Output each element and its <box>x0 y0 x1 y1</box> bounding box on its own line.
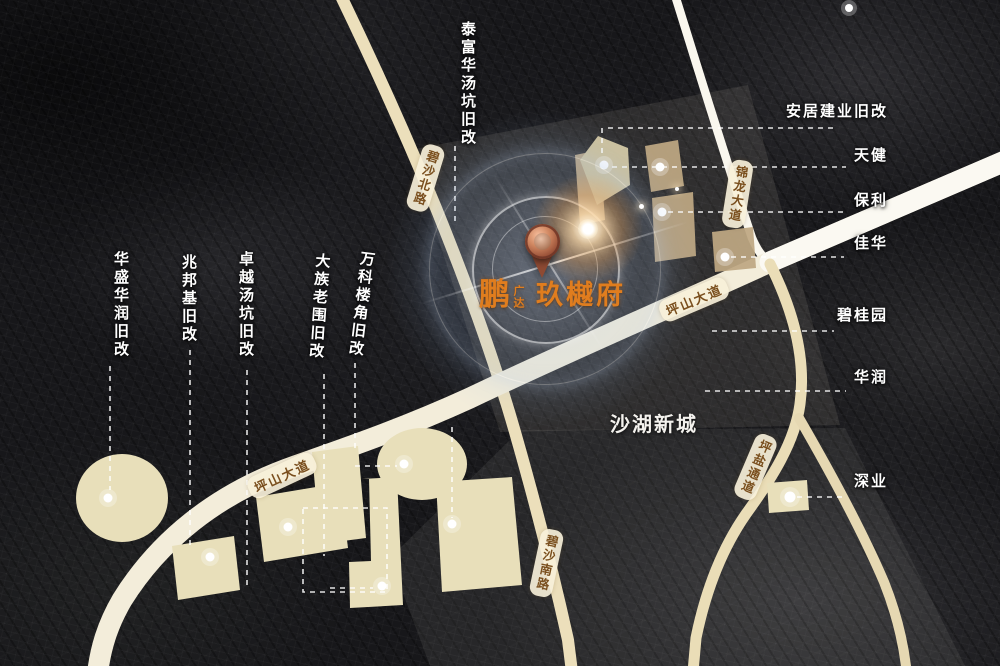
label-anju-jianye: 安居建业旧改 <box>786 100 888 121</box>
lens-flare-core <box>578 219 598 239</box>
area-label-shahu-new-town: 沙湖新城 <box>610 408 698 437</box>
project-brand: 鹏 广达 玖樾府 <box>479 280 626 311</box>
sparkle <box>639 204 644 209</box>
label-taifuhua-tangkeng: 泰富华汤坑旧改 <box>458 21 479 147</box>
map-pin-center <box>534 233 551 250</box>
label-huasheng-huarun: 华盛华润旧改 <box>111 251 132 359</box>
label-zhuoyue-tangkeng: 卓越汤坑旧改 <box>236 251 257 359</box>
label-biguiyuan: 碧桂园 <box>837 304 888 325</box>
label-shenye: 深业 <box>854 470 888 491</box>
label-zhaobangji: 兆邦基旧改 <box>179 254 200 344</box>
brand-logo-sub: 广达 <box>512 285 524 309</box>
label-jiahua: 佳华 <box>854 232 888 253</box>
label-baoli: 保利 <box>854 189 888 210</box>
brand-logo: 鹏 <box>479 280 510 311</box>
project-name: 玖樾府 <box>536 282 626 309</box>
location-map: 鹏 广达 玖樾府 沙湖新城 泰富华汤坑旧改 华盛华润旧改 兆邦基旧改 卓越汤坑旧… <box>0 0 1000 666</box>
sparkle <box>675 187 679 191</box>
label-tianjian: 天健 <box>854 144 888 165</box>
label-huarun: 华润 <box>854 366 888 387</box>
